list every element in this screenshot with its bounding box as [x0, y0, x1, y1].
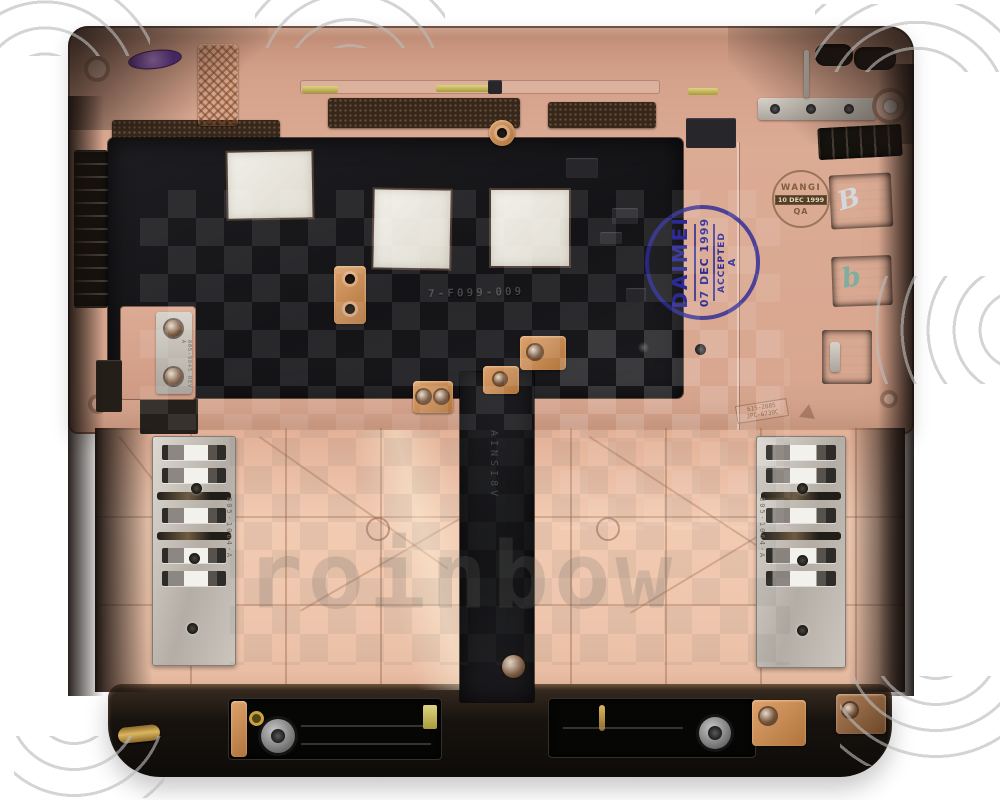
shield-screw — [191, 483, 202, 494]
watermark-arc — [815, 4, 1000, 72]
marker-label-1: B — [829, 172, 894, 229]
handwritten-mark-2: b — [839, 261, 863, 295]
stamp-dept: QA — [794, 207, 809, 216]
stamp-company: WANGI — [781, 183, 821, 193]
screw-boss — [84, 56, 110, 82]
screw — [760, 708, 776, 724]
copper-hinge-bracket — [231, 701, 247, 757]
port-ribbed-connector — [817, 124, 903, 160]
watermark-text: roinbow — [246, 523, 677, 630]
kapton-chip — [423, 705, 437, 729]
structural-rib — [563, 727, 683, 729]
grommet-screw — [271, 729, 285, 743]
metal-clip — [830, 342, 840, 372]
kapton-strip — [688, 88, 718, 95]
screw — [770, 104, 780, 114]
emi-shield-left: 805-1064-A — [152, 436, 236, 666]
hinge-grommet-right — [699, 717, 731, 749]
hinge-grommet-left — [261, 719, 295, 753]
contact-slot — [162, 508, 226, 523]
watermark-arc — [0, 0, 150, 56]
hinge-block-right — [752, 700, 806, 746]
screw-boss — [880, 390, 898, 408]
metal-strip — [758, 98, 876, 120]
screw — [806, 104, 816, 114]
shield-screw — [797, 625, 808, 636]
watermark-arc — [876, 276, 1000, 384]
kapton-strip — [436, 85, 496, 92]
stamp-date: 10 DEC 1999 — [775, 195, 827, 205]
side-vent — [74, 150, 108, 308]
photo-canvas: 7-F099-009 AINSI8V DAIMEI 07 DEC 1999 AC… — [0, 0, 1000, 800]
connector-cutout — [686, 118, 736, 148]
hinge-window-left — [228, 698, 442, 760]
contact-slot — [162, 445, 226, 460]
copper-mesh-tape — [198, 44, 238, 126]
shield-screw — [797, 555, 808, 566]
watermark-arc — [14, 736, 164, 798]
contact-slot — [162, 571, 226, 586]
metal-pin — [804, 50, 809, 98]
screw — [844, 104, 854, 114]
contact-slot — [162, 468, 226, 483]
latch-cutout — [488, 80, 502, 94]
connector-bump — [566, 158, 598, 178]
wangi-qa-stamp: WANGI 10 DEC 1999 QA — [772, 170, 830, 228]
watermark-arc — [840, 676, 1000, 766]
watermark-arc — [255, 0, 445, 48]
hinge-window-right — [548, 698, 756, 758]
kapton-strip — [302, 86, 338, 93]
structural-rib — [301, 743, 431, 745]
structural-rib — [301, 725, 431, 727]
shield-screw — [797, 483, 808, 494]
handwritten-mark-1: B — [834, 182, 864, 217]
connector-opening — [822, 330, 872, 384]
grommet-screw — [708, 726, 722, 740]
molded-triangle — [799, 403, 817, 419]
copper-round-standoff — [489, 120, 515, 146]
foam-strip — [548, 102, 656, 128]
screw-boss-center — [884, 100, 897, 113]
brass-standoff — [249, 711, 264, 726]
standoff-hole — [497, 128, 507, 138]
long-slot — [157, 532, 231, 540]
shield-screw — [187, 623, 198, 634]
lower-left-block — [96, 360, 122, 412]
shield-screw — [189, 553, 200, 564]
